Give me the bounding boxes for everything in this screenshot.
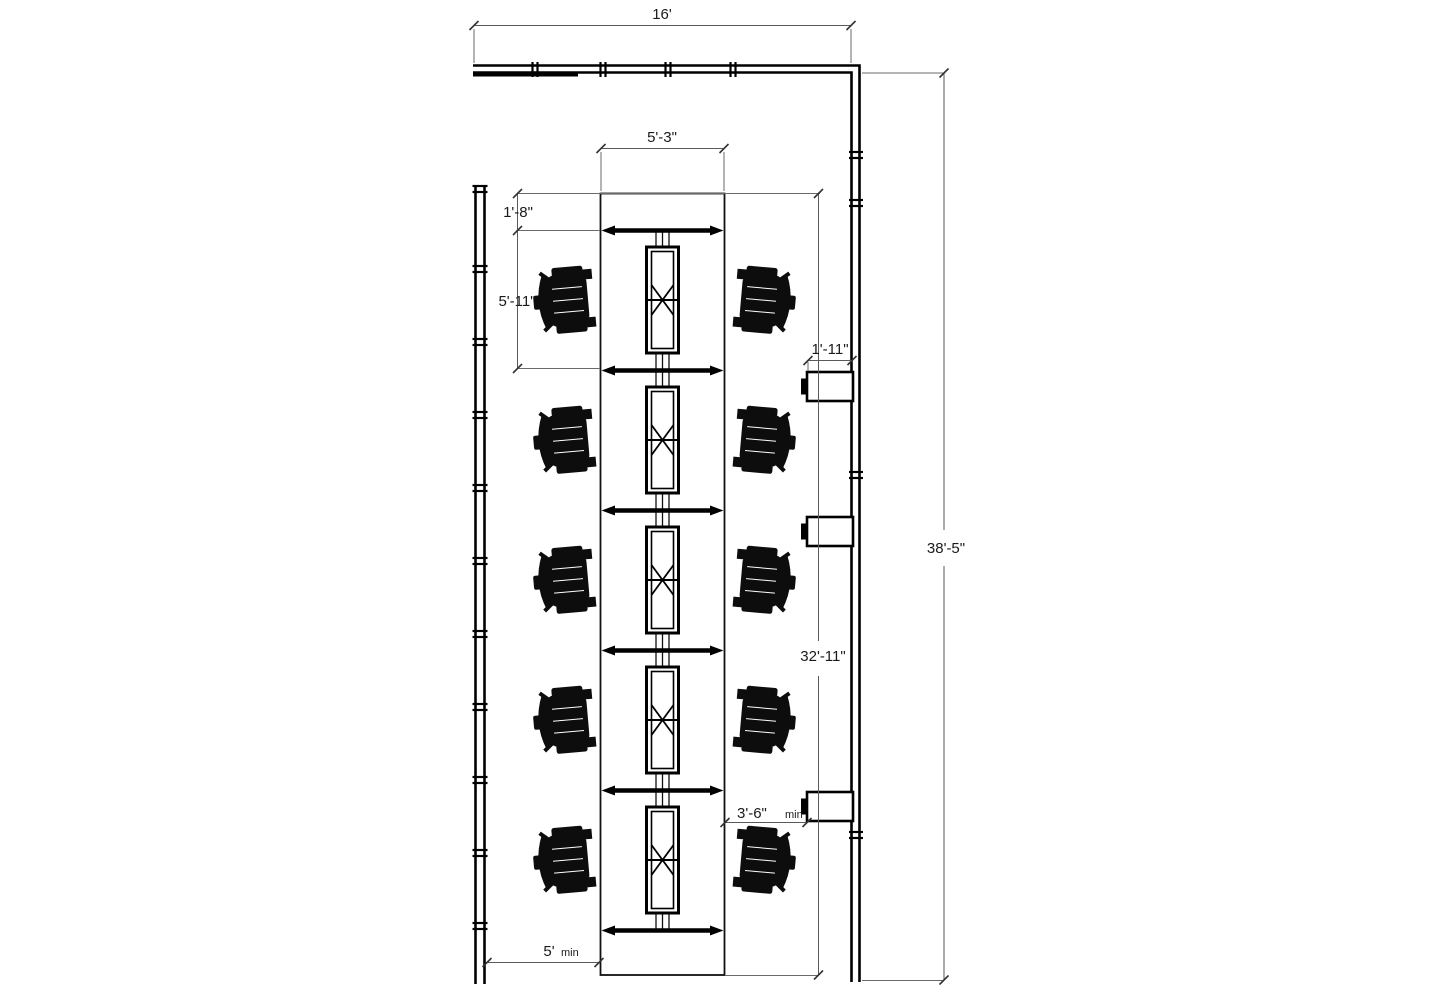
- task-chair: [531, 405, 597, 476]
- privacy-screen: [647, 807, 679, 913]
- task-chair: [531, 265, 597, 336]
- dim-label-room-depth: 38'-5": [927, 540, 965, 557]
- task-chair: [732, 265, 798, 336]
- task-chair: [732, 685, 798, 756]
- task-chair: [531, 685, 597, 756]
- privacy-screen: [647, 387, 679, 493]
- workstation-run: [601, 194, 725, 976]
- task-chair: [732, 405, 798, 476]
- dim-label-module-pitch: 5'-11": [498, 293, 535, 310]
- privacy-screen: [647, 667, 679, 773]
- dimension-cabinet-depth: 1'-11": [804, 341, 857, 371]
- floor-plan-page: 16' 5'-3" 1'-8" 5'-11" 32'-11" 1'-1: [0, 0, 1435, 1000]
- dimension-left-clearance: 5' min: [483, 943, 604, 967]
- left-wall: [476, 185, 485, 984]
- privacy-screen: [647, 247, 679, 353]
- dim-label-right-clearance: 3'-6": [737, 805, 767, 822]
- task-chair: [732, 825, 798, 896]
- dim-label-cabinet-depth: 1'-11": [811, 341, 848, 358]
- dim-label-top-wall-width: 16': [652, 6, 672, 23]
- dim-label-right-clearance-min: min: [785, 809, 803, 821]
- dim-label-end-overhang: 1'-8": [503, 204, 533, 221]
- dimension-top-wall-width: 16': [470, 6, 856, 63]
- dim-label-left-clearance: 5': [543, 943, 554, 960]
- dimension-right-clearance: 3'-6" min: [721, 805, 812, 827]
- wall-cabinet: [801, 792, 853, 821]
- task-chair: [531, 825, 597, 896]
- wall-cabinet: [801, 372, 853, 401]
- dimension-worksurface-width: 5'-3": [597, 129, 729, 191]
- dimension-room-depth: 38'-5": [862, 69, 965, 985]
- task-chair: [732, 545, 798, 616]
- dim-label-left-clearance-min: min: [561, 947, 579, 959]
- privacy-screen: [647, 527, 679, 633]
- wall-cabinet: [801, 517, 853, 546]
- dim-label-run-length: 32'-11": [800, 648, 845, 665]
- task-chair: [531, 545, 597, 616]
- dim-label-worksurface-width: 5'-3": [647, 129, 677, 146]
- floor-plan-canvas: 16' 5'-3" 1'-8" 5'-11" 32'-11" 1'-1: [0, 0, 1435, 1000]
- wall-cabinets: [801, 372, 853, 821]
